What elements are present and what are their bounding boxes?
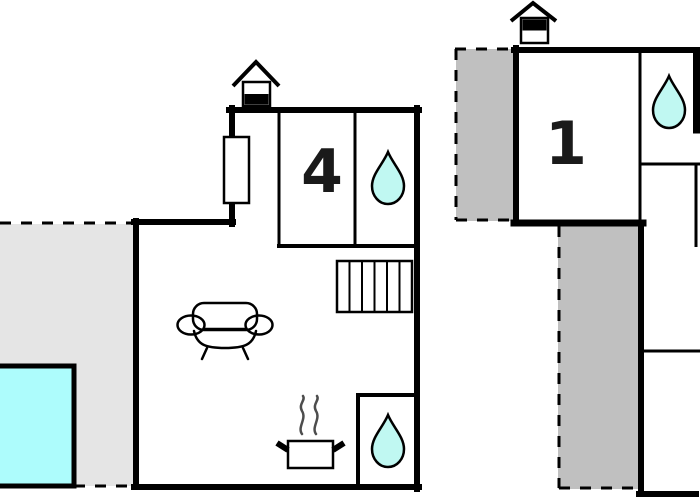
chimney-icon [511,3,556,43]
room-4-label: 4 [301,137,343,207]
stove-steam-icon [277,396,344,468]
pool [0,366,74,486]
sofa-icon [178,303,273,359]
water-drop-icon [372,415,404,467]
floor-plan-canvas: 4 [0,0,700,500]
room-1-label: 1 [545,109,587,179]
chimney-icon [233,62,279,106]
terrace-right-upper-area [456,49,513,221]
water-drop-icon [372,152,404,204]
terrace-right-lower-area [558,226,640,489]
stairs-icon [337,261,412,312]
floor-plan: 4 [0,0,700,500]
water-drop-icon [653,76,685,128]
window-icon [224,137,249,203]
